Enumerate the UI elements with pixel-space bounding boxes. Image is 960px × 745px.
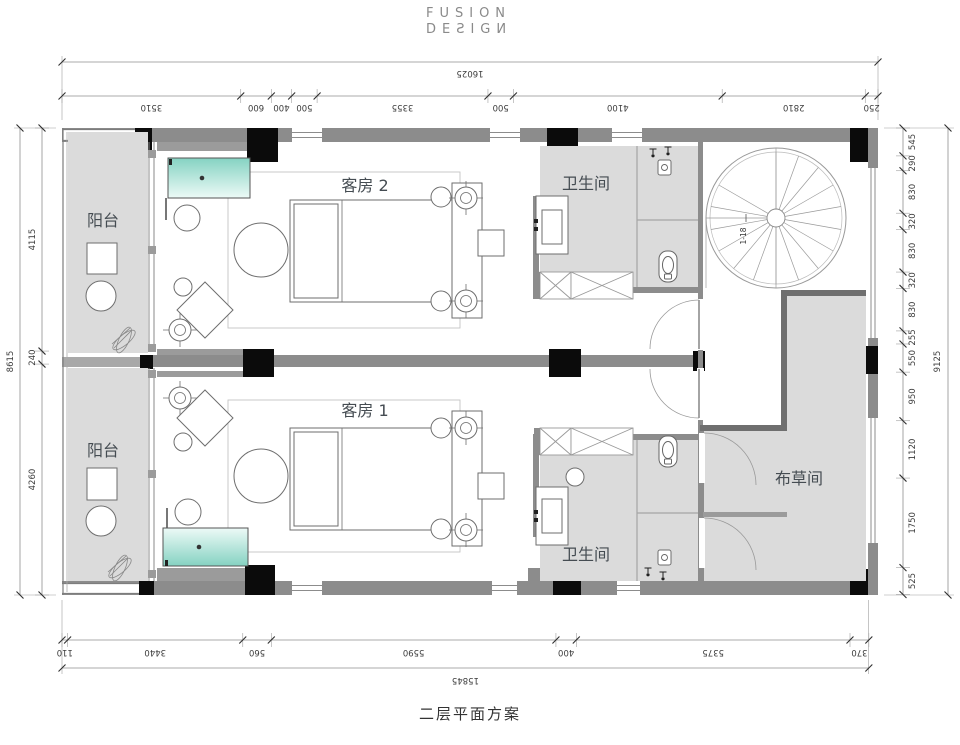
window-right-2	[868, 418, 878, 543]
guest-room-1: 客房 1	[163, 381, 504, 566]
dim-label: 830	[908, 243, 918, 259]
dim-label: 400	[558, 647, 574, 657]
dim-label: 9125	[933, 351, 943, 373]
dim-label: 15845	[452, 675, 479, 685]
dim-label: 320	[908, 213, 918, 229]
window-right-1	[868, 168, 878, 338]
balcony-chair	[86, 506, 116, 536]
dim-label: 525	[908, 573, 918, 589]
dim-label: 950	[908, 388, 918, 404]
stool	[174, 205, 200, 231]
dim-label: 400	[273, 102, 289, 112]
dim-label: 4260	[28, 469, 38, 491]
dim-label: 1750	[908, 512, 918, 534]
faucet	[534, 227, 538, 231]
nightstand	[478, 230, 504, 256]
nightstand	[478, 473, 504, 499]
faucet	[534, 219, 538, 223]
column	[243, 349, 274, 377]
dim-label: 2810	[783, 102, 805, 112]
tub-drain	[200, 176, 205, 181]
dim-label: 560	[249, 647, 265, 657]
dim-label: 830	[908, 184, 918, 200]
stair-run-label: 1-18	[739, 227, 748, 244]
faucet	[534, 510, 538, 514]
sheet-title: 二层平面方案	[370, 703, 570, 724]
dim-label: 830	[908, 302, 918, 318]
faucet	[534, 518, 538, 522]
column	[139, 581, 154, 595]
dimensions-bottom: 11034405605590400537537015845	[57, 633, 873, 685]
dim-label: 600	[248, 102, 264, 112]
door-swing	[650, 300, 699, 349]
round-table	[234, 449, 288, 503]
dim-label: 320	[908, 272, 918, 288]
bathroom-bottom-label: 卫生间	[562, 545, 610, 564]
plan-drawing: 阳台 阳台	[0, 0, 960, 745]
dim-label: 8615	[6, 351, 16, 373]
linen-room: 布草间	[699, 290, 866, 581]
dim-label: 290	[908, 155, 918, 171]
column	[549, 349, 581, 377]
guest-room-2-label: 客房 2	[341, 176, 388, 195]
window-top-1	[292, 128, 322, 142]
bedside-stool	[431, 291, 451, 311]
column	[140, 355, 153, 369]
studio-logo: FUSION DEƧIGИ	[426, 6, 512, 38]
guest-room-2: 客房 2	[163, 158, 504, 347]
spiral-stair: 1-18	[706, 148, 846, 288]
dim-label: 240	[28, 349, 38, 365]
dim-label: 370	[851, 647, 867, 657]
dim-label: 250	[864, 102, 880, 112]
tub-faucet	[169, 159, 172, 165]
dim-label: 5590	[403, 647, 425, 657]
guest-room-1-label: 客房 1	[341, 401, 388, 420]
dim-label: 1120	[908, 439, 918, 461]
balcony-bottom: 阳台	[68, 368, 148, 583]
dimensions-right: 5452908303208303208302555509501120175052…	[896, 125, 952, 599]
dim-label: 16025	[456, 68, 483, 78]
stool-small	[174, 433, 192, 451]
dim-label: 4100	[607, 102, 629, 112]
balcony-top-label: 阳台	[87, 211, 119, 230]
dim-label: 5375	[702, 647, 724, 657]
window-bottom-3	[617, 581, 640, 595]
dim-label: 500	[493, 102, 509, 112]
column	[247, 128, 278, 162]
dim-label: 3510	[141, 102, 163, 112]
balcony-top: 阳台	[68, 132, 148, 355]
logo-line-2: DEƧIGИ	[426, 22, 512, 38]
closet	[540, 272, 633, 299]
bed-pillows	[294, 432, 338, 526]
balcony-table	[87, 468, 117, 500]
dim-label: 550	[908, 350, 918, 366]
linen-room-label: 布草间	[775, 469, 823, 488]
dim-label: 500	[296, 102, 312, 112]
dimensions-left: 411524042608615	[6, 125, 49, 599]
bathroom-top: 卫生间	[533, 146, 703, 299]
window-top-3	[612, 128, 642, 142]
round-table	[234, 223, 288, 277]
dimensions-top: 351060040050033555004100281025016025	[59, 59, 882, 113]
sink	[542, 499, 562, 533]
dim-label: 4115	[28, 229, 38, 251]
floor-plan-sheet: FUSION DEƧIGИ	[0, 0, 960, 745]
bed-pillows	[294, 204, 338, 298]
window-bottom-2	[492, 581, 517, 595]
bathtub	[163, 528, 248, 566]
window-bottom-1	[292, 581, 322, 595]
dim-label: 545	[908, 134, 918, 150]
column	[245, 565, 275, 595]
tub-drain	[197, 545, 202, 550]
bedside-stool	[431, 519, 451, 539]
dim-label: 3355	[392, 102, 414, 112]
shower-head	[658, 550, 671, 565]
bathroom-bottom: 卫生间	[533, 428, 703, 581]
stair-newel	[767, 209, 785, 227]
sink	[542, 210, 562, 244]
door-swing	[650, 369, 699, 418]
bedside-stool	[431, 418, 451, 438]
toilet	[659, 251, 677, 282]
closet	[540, 428, 633, 455]
dim-label: 110	[57, 647, 73, 657]
balcony-chair	[86, 281, 116, 311]
window-top-2	[490, 128, 520, 142]
balcony-bottom-label: 阳台	[87, 441, 119, 460]
bathtub	[168, 158, 250, 198]
shower-head	[658, 160, 671, 175]
dim-label: 3440	[144, 647, 166, 657]
dim-label: 255	[908, 329, 918, 345]
bathroom-top-label: 卫生间	[562, 174, 610, 193]
bedside-stool	[431, 187, 451, 207]
stool	[175, 499, 201, 525]
stool-small	[174, 278, 192, 296]
balcony-table	[87, 243, 117, 274]
basin	[566, 468, 584, 486]
toilet	[659, 436, 677, 467]
tub-faucet	[165, 560, 168, 566]
logo-line-1: FUSION	[426, 6, 512, 22]
